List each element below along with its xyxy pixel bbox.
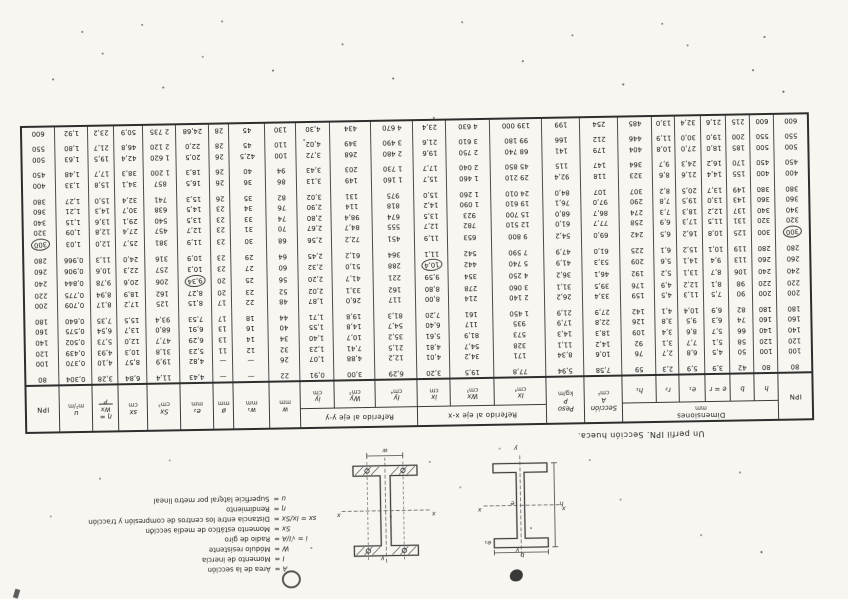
table-cell: 24 010 bbox=[491, 187, 543, 198]
table-cell: 23 bbox=[210, 203, 230, 214]
table-cell: 100 bbox=[778, 345, 812, 356]
table-cell: 54,2 bbox=[544, 229, 582, 242]
table-cell: 72,2 bbox=[332, 233, 373, 246]
table-cell: 6,91 bbox=[179, 324, 212, 335]
table-cell: 2,02 bbox=[299, 285, 333, 296]
table-cell: 2,56 bbox=[298, 233, 332, 246]
table-cell: 10,6 bbox=[90, 265, 116, 277]
header-e1: e₁ bbox=[679, 374, 705, 402]
table-cell: 935 bbox=[493, 318, 545, 329]
scan-noise-layer-2 bbox=[761, 552, 763, 554]
table-cell: 0,709 bbox=[58, 300, 91, 311]
table-cell: 7,5 bbox=[704, 289, 729, 300]
table-cell: 300 bbox=[23, 238, 57, 251]
table-cell: 225 bbox=[620, 245, 654, 256]
header-u: um²/m bbox=[59, 385, 93, 433]
table-cell: 131 bbox=[728, 215, 752, 226]
table-cell: 6,9 bbox=[654, 217, 677, 228]
table-cell: 81,3 bbox=[374, 310, 416, 321]
table-cell: 7,20 bbox=[416, 309, 449, 320]
table-cell: 5 740 bbox=[492, 257, 544, 270]
table-cell: 9,5 bbox=[678, 315, 704, 326]
table-cell: 47,9 bbox=[544, 246, 582, 257]
table-cell: 59 bbox=[622, 363, 656, 375]
table-cell: — bbox=[233, 370, 269, 382]
table-cell: 113 bbox=[728, 254, 752, 266]
table-cell: 240 bbox=[23, 278, 57, 291]
header-peso: PesoPkg/m bbox=[546, 376, 585, 424]
table-cell: 818 bbox=[372, 200, 414, 211]
table-cell: 31,1 bbox=[545, 280, 583, 291]
header-Wx: Wxcm³ bbox=[450, 378, 494, 406]
table-cell: 7,35 bbox=[91, 315, 117, 326]
table-cell: 7,8 bbox=[653, 195, 676, 206]
table-cell: 274 bbox=[619, 206, 653, 217]
table-cell: 60 bbox=[267, 261, 298, 274]
table-cell: 24,3 bbox=[676, 158, 702, 169]
table-cell: 12,7 bbox=[178, 225, 211, 236]
table-cell: 11,9 bbox=[178, 235, 211, 248]
table-cell: 22,3 bbox=[116, 264, 145, 277]
table-cell: 360 bbox=[751, 194, 775, 205]
table-cell: 11,5 bbox=[703, 216, 728, 227]
table-cell: 2,45 bbox=[298, 250, 332, 261]
table-cell: 280 bbox=[752, 243, 776, 254]
table-cell: 0,502 bbox=[58, 336, 91, 347]
table-cell: 92,4 bbox=[543, 171, 581, 182]
header-Sx: Sxcm³ bbox=[147, 383, 181, 431]
table-cell: 7,41 bbox=[334, 342, 375, 353]
table-cell: 20,6 bbox=[116, 276, 145, 289]
table-cell: 200 bbox=[24, 300, 58, 311]
table-cell: 9 800 bbox=[492, 230, 544, 243]
table-cell: 221 bbox=[373, 271, 415, 284]
table-cell: 26,2 bbox=[545, 291, 583, 302]
table-cell: 115 bbox=[543, 160, 581, 171]
table-cell: 12,8 bbox=[90, 226, 116, 237]
table-cell: 77,8 bbox=[494, 365, 546, 377]
table-cell: 10,8 bbox=[652, 143, 675, 154]
table-cell: 13,0 bbox=[652, 116, 675, 128]
table-cell: 2,20 bbox=[298, 273, 332, 286]
table-cell: 288 bbox=[373, 259, 415, 272]
table-cell: 4,30 bbox=[296, 122, 330, 134]
table-cell: 3,20 bbox=[417, 367, 450, 379]
table-cell: 68,0 bbox=[146, 324, 179, 335]
table-cell: 200 bbox=[777, 287, 811, 298]
table-cell: 8,34 bbox=[546, 349, 584, 360]
table-cell: 70 bbox=[267, 223, 298, 234]
table-cell: 6,54 bbox=[91, 325, 117, 336]
table-cell: 68 bbox=[267, 234, 298, 247]
table-cell: 20 bbox=[211, 275, 231, 287]
table-cell: 360 bbox=[775, 193, 809, 204]
table-cell: 16,2 bbox=[702, 158, 727, 169]
table-cell: 33 bbox=[230, 213, 266, 224]
table-cell: 40 bbox=[268, 322, 299, 333]
header-e: e = r bbox=[705, 374, 730, 402]
table-cell: 54,7 bbox=[450, 340, 494, 351]
corner-scan-mark bbox=[13, 589, 20, 599]
table-cell: 17,2 bbox=[117, 299, 146, 310]
table-body: 8080423,95,92,3597,585,9477,819,53,206,2… bbox=[21, 114, 813, 386]
table-cell: 21,7 bbox=[88, 142, 114, 153]
table-cell: 10,1 bbox=[703, 243, 728, 254]
table-cell: 10,4 bbox=[415, 259, 448, 272]
table-cell: 3,8 bbox=[655, 316, 678, 327]
table-cell: 35 bbox=[230, 192, 266, 203]
table-cell: 260 bbox=[752, 253, 776, 265]
table-cell: 18,3 bbox=[177, 167, 210, 178]
table-cell: 5,23 bbox=[180, 345, 213, 356]
table-cell: 162 bbox=[146, 288, 179, 299]
table-cell: 206 bbox=[145, 276, 178, 289]
table-cell: 11 bbox=[213, 345, 233, 356]
table-cell: 192 bbox=[620, 267, 654, 280]
table-cell: 33,1 bbox=[333, 284, 374, 295]
table-cell: 32,4 bbox=[675, 115, 701, 127]
table-cell: 300 bbox=[776, 225, 810, 238]
table-cell: 19,0 bbox=[701, 132, 726, 143]
table-cell: 5,61 bbox=[416, 330, 449, 341]
table-cell: 11,4 bbox=[147, 372, 180, 384]
table-cell: 44 bbox=[268, 312, 299, 323]
table-cell: 12,0 bbox=[117, 335, 146, 346]
table-cell: 19,5 bbox=[88, 153, 114, 164]
table-cell: 300 bbox=[752, 226, 776, 238]
table-cell: 220 bbox=[753, 277, 777, 288]
table-cell: 12 510 bbox=[492, 219, 544, 230]
table-cell: 19,5 bbox=[450, 366, 494, 378]
table-cell: 380 bbox=[751, 183, 775, 194]
table-cell: 434 bbox=[330, 121, 371, 133]
table-cell: 240 bbox=[776, 265, 810, 278]
table-cell: 7 590 bbox=[492, 247, 544, 258]
table-cell: 1,63 bbox=[55, 153, 88, 164]
table-cell: 6,3 bbox=[704, 315, 729, 326]
header-r2: r₂ bbox=[656, 375, 679, 403]
table-cell: 199 bbox=[542, 118, 580, 130]
table-cell: 4,88 bbox=[334, 353, 375, 364]
table-cell: 1 160 bbox=[372, 174, 414, 185]
table-cell: 46,8 bbox=[114, 142, 143, 153]
table-cell: 8,6 bbox=[653, 169, 676, 180]
table-cell: 500 bbox=[750, 141, 774, 152]
table-cell: 137 bbox=[727, 205, 751, 216]
table-cell: 34 bbox=[230, 203, 266, 214]
table-cell: 13,6 bbox=[89, 216, 115, 227]
table-cell: 2,67 bbox=[298, 223, 332, 234]
table-cell: 0,370 bbox=[59, 358, 92, 369]
table-cell: 24,0 bbox=[116, 254, 145, 265]
table-cell: 13,0 bbox=[702, 195, 727, 206]
table-cell: 3,28 bbox=[92, 373, 118, 385]
table-cell: 446 bbox=[618, 133, 652, 144]
table-cell: 19,9 bbox=[147, 356, 180, 367]
table-cell: 14,4 bbox=[702, 168, 727, 179]
table-cell: 8,1 bbox=[704, 278, 729, 289]
table-cell: 340 bbox=[751, 204, 775, 215]
page-title: Un perfil IPN. Sección hueca. bbox=[577, 429, 704, 440]
table-cell: 141 bbox=[542, 145, 580, 156]
table-cell: 200 bbox=[753, 288, 777, 299]
table-cell: 1,21 bbox=[56, 206, 89, 217]
table-cell: 22,0 bbox=[176, 141, 209, 152]
table-cell: 5,73 bbox=[91, 336, 117, 347]
table-cell: 50,9 bbox=[114, 125, 143, 137]
table-cell: 180 bbox=[753, 303, 777, 314]
table-cell: 46,1 bbox=[582, 268, 620, 281]
table-cell: 1 450 bbox=[493, 307, 545, 318]
table-cell: 68,0 bbox=[543, 208, 581, 219]
table-cell: 180 bbox=[24, 316, 58, 327]
table-cell: 4 670 bbox=[371, 120, 413, 132]
table-cell: 450 bbox=[22, 170, 56, 181]
table-cell: 4,02 bbox=[296, 139, 330, 150]
table-cell: 8,00 bbox=[416, 293, 449, 304]
table-cell: 13,5 bbox=[177, 214, 210, 225]
table-cell: 200 bbox=[726, 131, 750, 142]
table-cell: 2 480 bbox=[371, 148, 413, 159]
table-cell: 6,9 bbox=[704, 304, 729, 315]
table-cell: 15,0 bbox=[89, 195, 115, 206]
header-e2: e₂mm bbox=[180, 383, 214, 431]
notes-list: A =Área de la secciónI =Momento de inerc… bbox=[19, 492, 352, 576]
table-cell: 21,6 bbox=[676, 169, 702, 180]
table-cell: 340 bbox=[775, 204, 809, 215]
table-cell: 28 bbox=[209, 140, 229, 151]
table-cell: 52 bbox=[268, 285, 299, 296]
table-cell: 42 bbox=[730, 362, 754, 374]
table-cell: 320 bbox=[776, 214, 810, 225]
table-cell: 975 bbox=[372, 189, 414, 200]
table-cell: 86 bbox=[266, 176, 297, 187]
table-cell: 109 bbox=[621, 327, 655, 338]
table-cell: 20 bbox=[212, 287, 232, 298]
table-cell: 214 bbox=[449, 293, 493, 304]
header-eje-y: Referido al eje y-y bbox=[301, 407, 418, 429]
table-cell: 278 bbox=[449, 282, 493, 293]
table-cell: 23 bbox=[211, 263, 231, 275]
table-cell: 185 bbox=[726, 142, 750, 153]
table-cell: 23 bbox=[210, 214, 230, 225]
diagram-label-e1: e₁ bbox=[484, 539, 491, 547]
table-cell: 36,2 bbox=[544, 268, 582, 281]
table-cell: 5,2 bbox=[654, 267, 677, 279]
table-cell: 782 bbox=[448, 220, 492, 231]
table-cell: 32,4 bbox=[115, 194, 144, 205]
table-cell: 23,4 bbox=[413, 120, 446, 132]
table-cell: 35,2 bbox=[374, 331, 416, 342]
table-cell: 8,15 bbox=[179, 298, 212, 309]
table-cell: 15,3 bbox=[177, 193, 210, 204]
ipn-section-diagram-dimensions: b e₁ e h x x y y bbox=[475, 443, 569, 559]
table-cell: 51,0 bbox=[332, 260, 373, 273]
table-cell: 2 750 bbox=[446, 146, 490, 157]
table-cell: 14,2 bbox=[584, 338, 622, 349]
table-cell: 14 bbox=[232, 333, 268, 344]
table-cell: 80 bbox=[754, 361, 778, 373]
table-cell: 27 bbox=[231, 262, 267, 275]
table-cell: 66 bbox=[729, 325, 753, 336]
table-cell: 1,80 bbox=[55, 143, 88, 154]
table-cell: 80 bbox=[25, 374, 59, 386]
table-cell: 13,5 bbox=[414, 210, 447, 221]
table-cell: 4,81 bbox=[417, 341, 450, 352]
table-cell: 100 bbox=[25, 358, 59, 369]
table-cell: 140 bbox=[777, 324, 811, 335]
table-cell: 280 bbox=[23, 255, 57, 266]
table-cell: 11,9 bbox=[652, 132, 675, 143]
table-cell: 340 bbox=[22, 217, 56, 228]
header-Iy: Iycm⁴ bbox=[375, 379, 417, 407]
table-cell: 3,02 bbox=[297, 191, 331, 202]
table-cell: 6,8 bbox=[679, 347, 705, 358]
table-cell: 21,6 bbox=[413, 136, 446, 147]
table-cell: 56 bbox=[267, 273, 298, 286]
table-cell: 1 620 bbox=[143, 152, 176, 163]
header-eje-x: Referido al eje x-x bbox=[418, 404, 547, 426]
table-cell: 86,7 bbox=[581, 207, 619, 218]
table-cell: 15,5 bbox=[117, 314, 146, 325]
table-cell: 442 bbox=[448, 258, 492, 271]
table-cell: 3 490 bbox=[371, 137, 413, 148]
table-cell: 4 630 bbox=[446, 119, 490, 131]
table-cell: 3,43 bbox=[297, 165, 331, 176]
table-cell: 110 bbox=[265, 139, 296, 150]
table-cell: 26,0 bbox=[333, 295, 374, 306]
table-cell: 76 bbox=[266, 202, 297, 213]
table-cell: 7,7 bbox=[679, 336, 705, 347]
table-cell: 18,3 bbox=[583, 327, 621, 338]
table-cell: 23 bbox=[211, 224, 231, 235]
table-cell: 10,3 bbox=[178, 263, 211, 276]
table-cell: 1,48 bbox=[56, 169, 89, 180]
table-cell: 6,1 bbox=[654, 244, 677, 255]
table-cell: 0,304 bbox=[59, 373, 92, 385]
header-Ix: Ixcm⁴ bbox=[494, 377, 546, 405]
table-cell: 1 460 bbox=[447, 173, 491, 184]
table-cell: 555 bbox=[373, 221, 415, 232]
table-cell: 12,7 bbox=[415, 221, 448, 232]
header-iy: iycm bbox=[300, 381, 335, 409]
table-cell: 1,55 bbox=[299, 322, 333, 333]
table-cell: 23,2 bbox=[88, 126, 114, 138]
table-cell: 1 200 bbox=[144, 167, 177, 178]
table-cell: 5,1 bbox=[705, 336, 730, 347]
table-cell: 23 bbox=[211, 252, 231, 263]
table-cell: 573 bbox=[493, 329, 545, 340]
table-cell: 114 bbox=[331, 201, 372, 212]
table-cell: 8,7 bbox=[703, 266, 728, 278]
header-w: wmm bbox=[269, 381, 301, 429]
table-cell: 380 bbox=[22, 196, 56, 207]
diagram-label-w: w bbox=[382, 447, 388, 455]
table-cell: 1,03 bbox=[57, 237, 90, 250]
table-cell: 64 bbox=[267, 251, 298, 262]
table-cell: 94 bbox=[266, 165, 297, 176]
table-cell: 7,3 bbox=[653, 206, 676, 217]
table-cell: 550 bbox=[774, 130, 808, 141]
table-cell: 147 bbox=[581, 160, 619, 171]
table-cell: 50 bbox=[730, 346, 754, 357]
table-cell: 140 bbox=[24, 337, 58, 348]
diagram-label-b: b bbox=[520, 551, 524, 558]
table-cell: 149 bbox=[727, 184, 751, 195]
table-cell: 364 bbox=[619, 159, 653, 170]
circular-stamp-mark bbox=[282, 570, 301, 588]
table-cell: 98 bbox=[729, 278, 753, 289]
table-cell: 1,07 bbox=[300, 353, 334, 364]
table-cell: 6,40 bbox=[416, 320, 449, 331]
table-cell: 268 bbox=[330, 148, 371, 159]
table-cell: 6,29 bbox=[375, 368, 417, 380]
table-cell: 125 bbox=[728, 226, 752, 238]
table-cell: 2 120 bbox=[143, 141, 176, 152]
header-sx: sxcm bbox=[118, 384, 148, 431]
table-cell: 27,4 bbox=[116, 226, 145, 237]
table-cell: 485 bbox=[618, 116, 652, 128]
table-cell: 0,906 bbox=[57, 265, 90, 278]
table-cell: 179 bbox=[580, 144, 618, 155]
header-seccion: SecciónAcm² bbox=[584, 376, 623, 424]
table-cell: 80 bbox=[778, 361, 812, 373]
table-cell: 1,92 bbox=[55, 126, 88, 138]
table-cell: 54,7 bbox=[374, 320, 416, 331]
table-cell: 23 bbox=[211, 235, 231, 247]
table-cell: 100 bbox=[265, 150, 296, 161]
table-cell: 2,90 bbox=[297, 201, 331, 212]
table-cell: 550 bbox=[750, 131, 774, 142]
table-cell: 30,7 bbox=[115, 205, 144, 216]
table-cell: 19 610 bbox=[491, 198, 543, 209]
header-Wy: Wycm³ bbox=[334, 380, 375, 408]
table-cell: 0,575 bbox=[58, 326, 91, 337]
table-cell: 45 bbox=[229, 140, 265, 151]
table-cell: — bbox=[213, 371, 233, 383]
table-cell: 17,3 bbox=[677, 216, 703, 227]
table-cell: 220 bbox=[24, 290, 58, 301]
table-cell: 242 bbox=[620, 228, 654, 241]
table-cell: 290 bbox=[619, 196, 653, 207]
table-cell: 68 740 bbox=[490, 145, 542, 156]
scanned-page: Un perfil IPN. Sección hueca. IPN Dimens… bbox=[0, 0, 848, 599]
table-cell: 15,2 bbox=[677, 244, 703, 255]
table-cell: 11,1 bbox=[546, 338, 584, 349]
table-cell: 316 bbox=[145, 253, 178, 264]
table-cell: 82 bbox=[266, 191, 297, 202]
table-cell: 18,9 bbox=[117, 288, 146, 299]
table-cell: — bbox=[213, 355, 233, 366]
table-cell: 16,2 bbox=[677, 227, 703, 239]
table-cell: 17 bbox=[212, 297, 232, 308]
table-cell: 9,34 bbox=[178, 275, 211, 288]
table-cell: 27,0 bbox=[675, 143, 701, 154]
table-cell: 380 bbox=[775, 183, 809, 194]
table-cell: 12,0 bbox=[90, 237, 116, 249]
table-cell: 170 bbox=[727, 157, 751, 168]
table-cell: 4,9 bbox=[655, 279, 678, 290]
table-cell: 24,68 bbox=[176, 124, 209, 136]
table-cell: 638 bbox=[144, 204, 177, 215]
table-cell: 1,71 bbox=[299, 311, 333, 322]
table-cell: 8,94 bbox=[91, 289, 117, 300]
table-cell: 100 bbox=[754, 346, 778, 357]
table-cell: 32 bbox=[269, 343, 300, 354]
table-cell: 15,8 bbox=[89, 179, 115, 190]
table-cell: 5,6 bbox=[654, 255, 677, 267]
header-eta: η =WxP bbox=[92, 384, 119, 431]
